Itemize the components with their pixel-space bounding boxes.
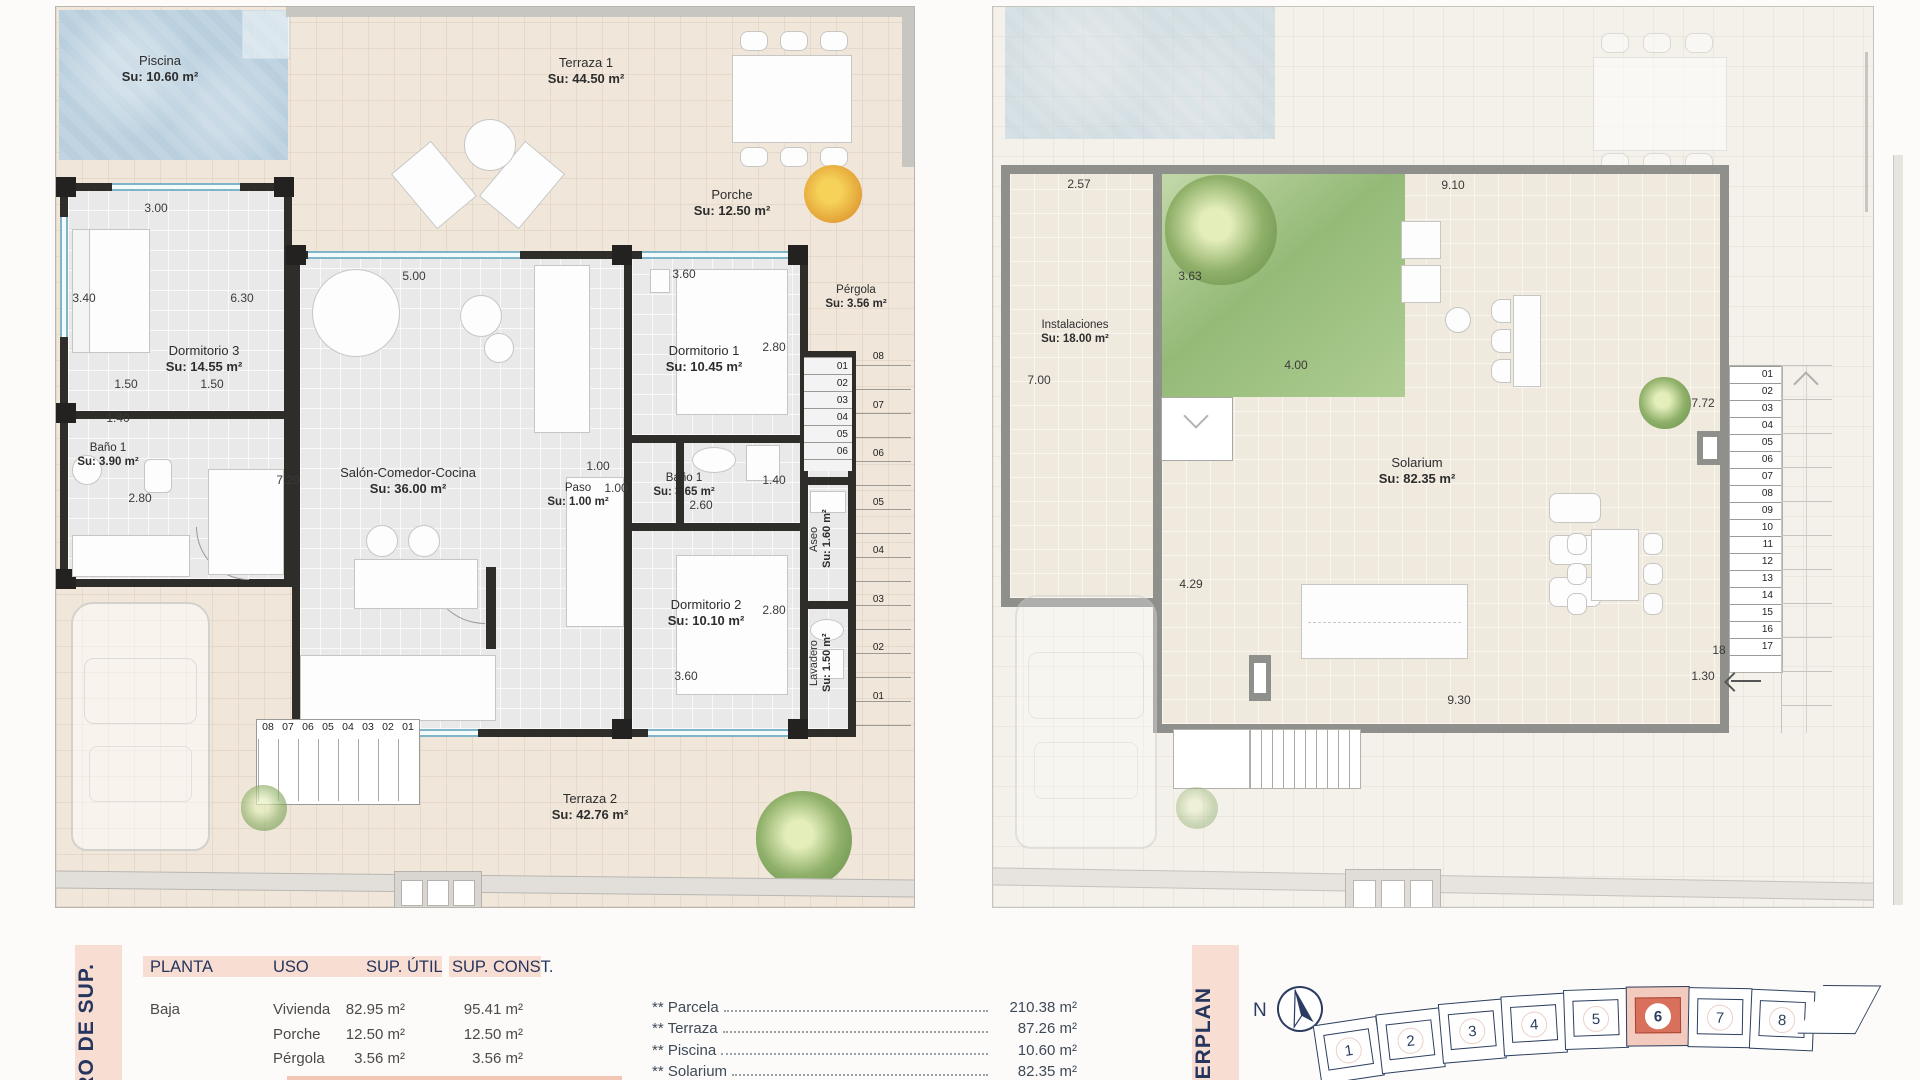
summary-label: ** Solarium	[652, 1063, 727, 1080]
pillar	[612, 245, 632, 265]
nightstand	[650, 269, 670, 293]
summary-row: ** Parcela 210.38 m²	[652, 994, 1077, 1016]
dim: 3.60	[672, 267, 695, 281]
dining-table-round	[312, 269, 400, 357]
room-label-paso: PasoSu: 1.00 m²	[547, 481, 608, 509]
stair-number: 10	[1762, 522, 1773, 539]
dim: 2.80	[762, 340, 785, 354]
dim: 7.20	[276, 473, 299, 487]
big-tree	[756, 791, 852, 887]
chair	[780, 147, 808, 167]
summary-value: 82.35 m²	[993, 1063, 1077, 1080]
stair-numbers: 0102030405060708091011121314151617	[1741, 369, 1773, 658]
stair-number: 08	[873, 351, 884, 400]
porch-table	[464, 119, 516, 171]
summary-label: ** Piscina	[652, 1042, 716, 1059]
stair-number: 01	[398, 721, 418, 733]
summary-list: ** Parcela 210.38 m² ** Terraza 87.26 m²…	[652, 994, 1077, 1080]
col-header-planta: PLANTA	[150, 958, 213, 977]
cell-sup-util: 3.56 m²	[345, 1050, 405, 1075]
room-label-dormitorio2: Dormitorio 2Su: 10.10 m²	[668, 597, 745, 629]
chair	[1491, 359, 1511, 383]
room-label-aseo: AseoSu: 1.60 m²	[808, 501, 834, 577]
stair-number: 02	[873, 642, 884, 691]
plot-number: 6	[1645, 1003, 1671, 1029]
summary-label: ** Terraza	[652, 1020, 718, 1037]
stair-numbers-outer: 0807060504030201	[858, 351, 884, 739]
room-label-bano1: Baño 1Su: 3.90 m²	[77, 441, 138, 469]
dim: 7.72	[1691, 396, 1714, 410]
cell-uso: Vivienda	[273, 1001, 345, 1026]
stair-number: 04	[338, 721, 358, 733]
summary-value: 210.38 m²	[993, 999, 1077, 1016]
bath1-wc	[144, 459, 172, 493]
table-rows: Vivienda 82.95 m² 95.41 m² Porche 12.50 …	[273, 1001, 523, 1075]
masterplan-plot: 7	[1688, 987, 1753, 1048]
window-dorm3	[112, 183, 240, 191]
plan-sheet: PiscinaSu: 10.60 m² Terraza 1Su: 44.50 m…	[0, 0, 1920, 1080]
dim: 9.30	[1447, 693, 1470, 707]
orange-tree	[804, 165, 862, 223]
stool	[366, 525, 398, 557]
stair-number: 03	[358, 721, 378, 733]
room-label-bano2: Baño 1Su: 3.65 m²	[653, 471, 714, 499]
chair	[1567, 593, 1587, 615]
stair-number: 04	[1762, 420, 1773, 437]
summary-label: ** Parcela	[652, 999, 719, 1016]
pool-ghost	[1005, 7, 1275, 139]
dim: 2.80	[128, 491, 151, 505]
dim: 2.60	[689, 498, 712, 512]
small-tree	[1176, 787, 1218, 829]
pillar	[56, 403, 76, 423]
room-instalaciones	[1001, 165, 1163, 607]
room-label-terraza1: Terraza 1Su: 44.50 m²	[548, 55, 625, 87]
table-vertical	[1513, 295, 1541, 387]
dim: 1.00	[586, 459, 609, 473]
stair-number: 01	[1762, 369, 1773, 386]
masterplan-plot: 1	[1313, 1016, 1385, 1080]
masterplan-plot: 3	[1438, 999, 1507, 1064]
stair-number: 05	[318, 721, 338, 733]
stair-exit-line	[1731, 680, 1761, 682]
summary-row: ** Terraza 87.26 m²	[652, 1016, 1077, 1038]
stair-number: 07	[873, 400, 884, 449]
stair-number: 04	[873, 545, 884, 594]
chair	[820, 147, 848, 167]
room-label-pergola: PérgolaSu: 3.56 m²	[825, 283, 886, 311]
chair	[1643, 593, 1663, 615]
dim: 5.00	[402, 269, 425, 283]
stair-number: 03	[837, 395, 848, 412]
cell-uso: Porche	[273, 1026, 345, 1051]
car-ghost	[1015, 595, 1157, 849]
dim: 3.63	[1178, 269, 1201, 283]
stair-number: 03	[1762, 403, 1773, 420]
pouf	[460, 295, 502, 337]
window-salon	[308, 251, 520, 259]
dim: 1.40	[762, 473, 785, 487]
sidebar-left-strip: DRO DE SUP.	[75, 945, 122, 1080]
room-label-dormitorio1: Dormitorio 1Su: 10.45 m²	[666, 343, 743, 375]
dotted-leader	[723, 1031, 988, 1033]
col-header-sup-const: SUP. CONST.	[452, 958, 553, 977]
floor-plan-ground: PiscinaSu: 10.60 m² Terraza 1Su: 44.50 m…	[55, 6, 915, 908]
stair-number: 02	[1762, 386, 1773, 403]
cell-sup-util: 82.95 m²	[345, 1001, 405, 1026]
floor-fixture-inner	[1254, 663, 1266, 693]
lounger	[1549, 493, 1601, 523]
dim: 1.30	[1691, 669, 1714, 683]
pillar	[788, 245, 808, 265]
sofa	[534, 265, 590, 433]
stair-number: 06	[837, 446, 848, 463]
chair	[740, 31, 768, 51]
dim: 4.00	[1284, 358, 1307, 372]
pillar	[612, 719, 632, 739]
chair	[1685, 33, 1713, 53]
sidebar-right-strip: STERPLAN	[1192, 945, 1239, 1080]
summary-value: 87.26 m²	[993, 1020, 1077, 1037]
chair	[1491, 299, 1511, 323]
stair-number: 05	[837, 429, 848, 446]
room-label-porche: PorcheSu: 12.50 m²	[694, 187, 771, 219]
chair	[740, 147, 768, 167]
table-row: Porche 12.50 m² 12.50 m²	[273, 1026, 523, 1051]
table-row: Vivienda 82.95 m² 95.41 m²	[273, 1001, 523, 1026]
stair-number: 06	[1762, 454, 1773, 471]
stair-number: 04	[837, 412, 848, 429]
stair-bottom-steps	[258, 739, 416, 801]
stair-numbers-inner: 010203040506	[812, 361, 848, 463]
room-label-terraza2: Terraza 2Su: 42.76 m²	[552, 791, 629, 823]
stair-bottom-box	[1173, 729, 1251, 789]
entry-steps	[1345, 869, 1441, 908]
stair-number: 16	[1762, 624, 1773, 641]
stair-number: 03	[873, 594, 884, 643]
pillar	[274, 177, 294, 197]
summary-value: 10.60 m²	[993, 1042, 1077, 1059]
dim: 3.60	[674, 669, 697, 683]
dim: 1.50	[200, 377, 223, 391]
small-tree	[241, 785, 287, 831]
dim: 7.00	[1027, 373, 1050, 387]
window-dorm1	[642, 251, 794, 259]
pouf	[484, 333, 514, 363]
pillar	[788, 719, 808, 739]
floor-name: Baja	[150, 1001, 180, 1018]
masterplan-plot: 2	[1375, 1007, 1445, 1074]
cell-sup-const: 3.56 m²	[405, 1050, 523, 1075]
bath2-sink	[692, 447, 736, 473]
dim: 2.57	[1067, 177, 1090, 191]
stair-number: 09	[1762, 505, 1773, 522]
dim: 9.10	[1441, 178, 1464, 192]
sidebar-left-label: DRO DE SUP.	[75, 963, 122, 1080]
stair-number: 01	[873, 691, 884, 740]
bath1-shower	[72, 535, 190, 577]
boundary-wall-right	[902, 7, 914, 167]
chair	[1643, 33, 1671, 53]
dim: 4.29	[1179, 577, 1202, 591]
neighbor-edge	[1865, 52, 1868, 212]
masterplan-plot: 6	[1626, 986, 1691, 1047]
stair-number: 14	[1762, 590, 1773, 607]
stair-numbers-bottom: 0807060504030201	[258, 721, 418, 733]
room-label-salon: Salón-Comedor-CocinaSu: 36.00 m²	[340, 465, 476, 497]
dining-ghost	[1593, 57, 1727, 151]
chair	[780, 31, 808, 51]
dim: 1.40	[106, 411, 129, 425]
table-row: Pérgola 3.56 m² 3.56 m²	[273, 1050, 523, 1075]
stair-number: 05	[1762, 437, 1773, 454]
wall-aseo-top	[804, 477, 852, 485]
side-table	[1445, 307, 1471, 333]
car	[71, 602, 210, 851]
dim: 6.30	[230, 291, 253, 305]
kitchen-island	[354, 559, 478, 609]
stair-number: 08	[258, 721, 278, 733]
stair-number: 08	[1762, 488, 1773, 505]
room-label-solarium: SolariumSu: 82.35 m²	[1379, 455, 1456, 487]
entry-steps	[394, 871, 482, 908]
floor-plan-solarium: 0102030405060708091011121314151617 Insta…	[992, 6, 1874, 908]
chair	[1643, 563, 1663, 585]
stair-number: 05	[873, 497, 884, 546]
stair-number: 15	[1762, 607, 1773, 624]
stair-number: 02	[378, 721, 398, 733]
dim: 3.00	[144, 201, 167, 215]
summary-row: ** Solarium 82.35 m²	[652, 1059, 1077, 1080]
stool	[408, 525, 440, 557]
stair-outer	[1781, 365, 1832, 733]
chair	[1601, 33, 1629, 53]
dim: 3.40	[72, 291, 95, 305]
seat	[1401, 265, 1441, 303]
stair-number: 07	[278, 721, 298, 733]
chair	[1567, 533, 1587, 555]
solarium-plant	[1639, 377, 1691, 429]
dotted-leader	[732, 1074, 988, 1076]
stair-number: 13	[1762, 573, 1773, 590]
boundary-wall-top	[286, 7, 914, 17]
stair-number: 11	[1763, 539, 1773, 556]
stair-bottom-steps	[1249, 729, 1361, 789]
window-dorm2	[648, 729, 794, 737]
col-header-uso: USO	[273, 958, 309, 977]
dim: 2.80	[762, 603, 785, 617]
dotted-leader	[721, 1053, 988, 1055]
stair-number: 01	[837, 361, 848, 378]
wall-aseo-bottom	[804, 601, 852, 609]
col-header-sup-util: SUP. ÚTIL	[366, 958, 443, 977]
masterplan-band: 1 2 3 4 5	[1317, 981, 1869, 1055]
stair-number: 07	[1762, 471, 1773, 488]
wall-fixture-inner	[1703, 437, 1717, 459]
masterplan-plot: 4	[1500, 993, 1568, 1057]
stair-number: 02	[837, 378, 848, 395]
north-label: N	[1253, 1000, 1267, 1022]
stair-number: 06	[298, 721, 318, 733]
dining-table	[1591, 529, 1639, 601]
pillar	[286, 245, 306, 265]
lounger	[391, 141, 477, 230]
window-dorm3-left	[60, 217, 68, 337]
pool-steps	[242, 10, 290, 59]
cell-sup-util: 12.50 m²	[345, 1026, 405, 1051]
dim: 18	[1712, 643, 1725, 657]
summary-row: ** Piscina 10.60 m²	[652, 1037, 1077, 1059]
dotted-leader	[724, 1010, 988, 1012]
chair	[1643, 533, 1663, 555]
kitchen-counter	[300, 655, 496, 721]
wall-kitchen-stub	[486, 567, 496, 649]
room-label-piscina: PiscinaSu: 10.60 m²	[122, 53, 199, 85]
chair	[1491, 329, 1511, 353]
stair-number: 06	[873, 448, 884, 497]
cell-sup-const: 12.50 m²	[405, 1026, 523, 1051]
outdoor-dining-table	[732, 55, 852, 143]
cell-sup-const: 95.41 m²	[405, 1001, 523, 1026]
stair-number: 12	[1762, 556, 1773, 573]
room-label-dormitorio3: Dormitorio 3Su: 14.55 m²	[166, 343, 243, 375]
masterplan-plot: 5	[1563, 988, 1629, 1050]
bench-planter	[1301, 584, 1468, 659]
chair	[1567, 563, 1587, 585]
cell-uso: Pérgola	[273, 1050, 345, 1075]
neighbor-plan-sliver	[1893, 155, 1903, 905]
sidebar-right-label: STERPLAN	[1192, 987, 1239, 1080]
room-label-instalaciones: InstalacionesSu: 18.00 m²	[1041, 318, 1109, 346]
stair-number: 17	[1762, 641, 1773, 658]
masterplan-plots: 1 2 3 4 5	[1317, 982, 1814, 1055]
dim: 1.50	[114, 377, 137, 391]
pillar	[56, 177, 76, 197]
hall-closet	[208, 469, 284, 575]
seat	[1401, 221, 1441, 259]
chair	[820, 31, 848, 51]
room-label-lavadero: LavaderoSu: 1.50 m²	[808, 615, 834, 711]
table-next-row-band	[287, 1076, 622, 1080]
